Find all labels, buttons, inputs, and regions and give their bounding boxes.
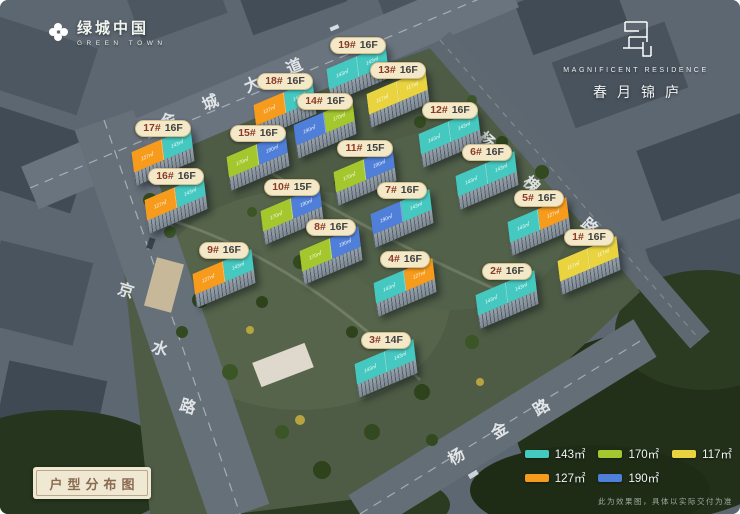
legend-swatch-143 [525,450,549,458]
building-3: 3#14F 143㎡143㎡ [354,332,418,385]
disclaimer-text: 此为效果图，具体以实际交付为准 [598,496,733,507]
legend-swatch-190 [598,474,622,482]
unit-type-legend: 143㎡ 170㎡ 117㎡ 127㎡ 190㎡ [525,446,732,486]
building-label: 5#16F [514,190,564,207]
legend-item: 117㎡ [672,446,732,462]
project-logo: MAGNIFICENT RESIDENCE 春月锦庐 [548,16,724,102]
building-label: 12#16F [422,102,478,119]
project-seal-icon [617,16,655,60]
building-label: 9#16F [199,242,249,259]
building-label: 18#16F [257,73,313,90]
building-2: 2#16F 143㎡143㎡ [475,263,539,316]
legend-item: 143㎡ [525,446,586,462]
building-label: 1#16F [564,229,614,246]
legend-swatch-127 [525,474,549,482]
legend-item: 170㎡ [598,446,659,462]
building-label: 10#15F [264,179,320,196]
building-4: 4#16F 143㎡127㎡ [373,251,437,304]
building-17: 17#16F 127㎡143㎡ [131,120,195,173]
project-name: 春月锦庐 [583,82,689,102]
building-label: 15#16F [230,125,286,142]
building-label: 13#16F [370,62,426,79]
building-label: 14#16F [297,93,353,110]
legend-item: 127㎡ [525,470,586,486]
legend-swatch-117 [672,450,696,458]
building-label: 19#16F [330,37,386,54]
building-label: 7#16F [377,182,427,199]
developer-logo: 绿城中国 GREEN TOWN [38,16,167,48]
building-16: 16#16F 127㎡143㎡ [144,168,208,221]
building-label: 17#16F [135,120,191,137]
building-15: 15#16F 170㎡190㎡ [226,125,290,178]
building-label: 3#14F [361,332,411,349]
developer-name-cn: 绿城中国 [77,17,167,38]
legend-swatch-170 [598,450,622,458]
building-label: 16#16F [148,168,204,185]
building-label: 8#16F [306,219,356,236]
greentown-flower-icon [38,16,70,48]
plan-title-badge: 户型分布图 [33,467,151,499]
building-1: 1#16F 117㎡117㎡ [557,229,621,282]
building-8: 8#16F 170㎡190㎡ [299,219,363,272]
site-plan-render: 金 城 大 道 杨 槐 路 京 水 路 杨 金 路 19#16F 143㎡143… [0,0,740,514]
legend-item: 190㎡ [598,470,659,486]
developer-name-en: GREEN TOWN [77,40,167,47]
building-label: 6#16F [462,144,512,161]
building-9: 9#16F 127㎡143㎡ [192,242,256,295]
building-7: 7#16F 190㎡143㎡ [370,182,434,235]
building-14: 14#16F 190㎡170㎡ [293,93,357,146]
building-label: 4#16F [380,251,430,268]
building-label: 11#15F [337,140,392,157]
building-label: 2#16F [482,263,532,280]
project-tagline: MAGNIFICENT RESIDENCE [563,67,708,74]
